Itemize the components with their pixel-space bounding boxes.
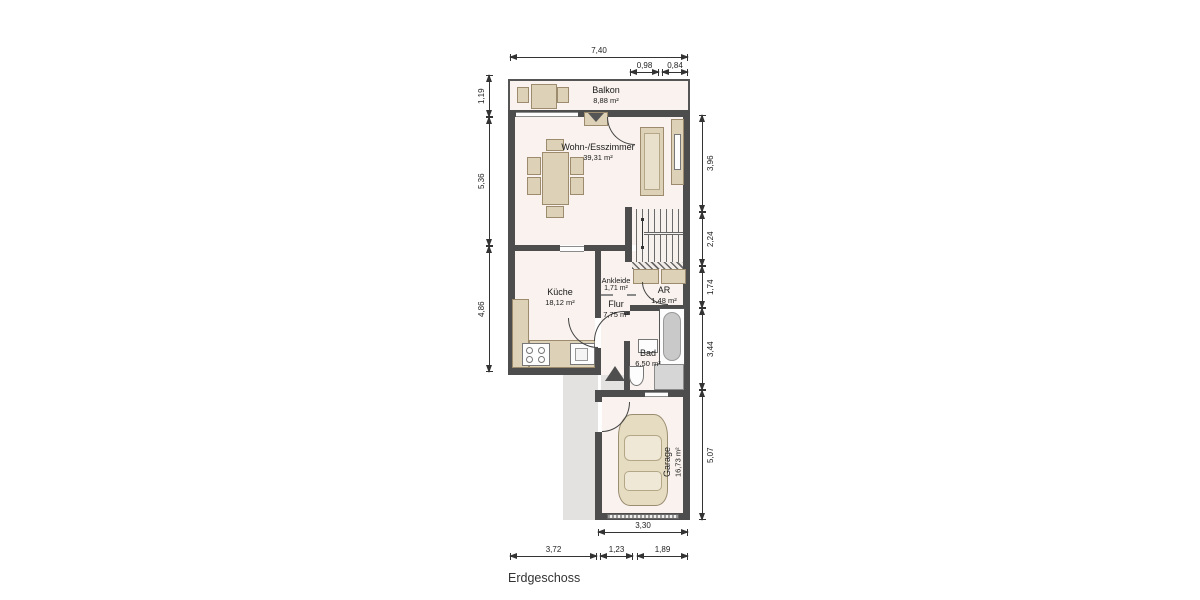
garage-window xyxy=(645,392,668,397)
burner-icon xyxy=(526,347,533,354)
dim-label: 3,44 xyxy=(706,308,715,390)
room-label-garage: Garage 16,73 m² xyxy=(662,436,683,488)
room-name: Flur xyxy=(594,299,638,310)
dim-1-23: 1,23 xyxy=(600,556,633,557)
car-icon xyxy=(618,414,668,506)
dim-label: 4,86 xyxy=(477,246,486,372)
stair-walk-dot xyxy=(641,246,644,249)
wall-segment xyxy=(625,207,632,262)
staircase xyxy=(636,209,683,262)
room-label-ar: AR 1,48 m² xyxy=(645,285,683,306)
room-area: 6,50 m² xyxy=(629,359,667,368)
dim-line xyxy=(702,390,703,520)
dim-label: 0,98 xyxy=(630,61,659,70)
tv-icon xyxy=(588,113,604,122)
dim-label: 3,30 xyxy=(598,521,688,530)
dim-line xyxy=(510,556,597,557)
dim-1-74: 1,74 xyxy=(702,266,703,308)
burner-icon xyxy=(538,347,545,354)
dim-label: 1,74 xyxy=(706,266,715,308)
wall-segment xyxy=(595,397,602,402)
balcony-railing xyxy=(508,79,510,110)
dim-0-98: 0,98 xyxy=(630,72,659,73)
dim-label: 1,19 xyxy=(477,75,486,117)
dim-1-19: 1,19 xyxy=(489,75,490,117)
wall-segment xyxy=(595,390,690,397)
room-label-wohn: Wohn-/Esszimmer 39,31 m² xyxy=(542,142,654,163)
dim-arrow xyxy=(699,513,705,521)
balcony-railing xyxy=(508,79,690,81)
dim-0-84: 0,84 xyxy=(662,72,688,73)
dim-3-72: 3,72 xyxy=(510,556,597,557)
room-name: AR xyxy=(645,285,683,296)
wall-segment xyxy=(595,432,602,520)
room-name: Bad xyxy=(629,348,667,359)
outdoor-path xyxy=(563,375,598,520)
wall-segment xyxy=(508,245,560,251)
room-label-balkon: Balkon 8,88 m² xyxy=(573,85,639,106)
doorway-passage xyxy=(560,246,584,252)
tv-screen xyxy=(674,134,681,170)
stair-cut-line xyxy=(632,262,683,269)
balcony-railing xyxy=(688,79,690,110)
dim-label: 0,84 xyxy=(662,61,688,70)
dim-3-30: 3,30 xyxy=(598,532,688,533)
dim-arrow xyxy=(486,74,492,82)
room-area: 1,48 m² xyxy=(645,296,683,305)
sink-basin xyxy=(575,348,588,361)
car-rear-window xyxy=(624,471,662,491)
balcony-chair xyxy=(557,87,569,103)
room-name: Ankleide xyxy=(593,276,639,285)
wall-segment xyxy=(508,368,601,375)
dim-label: 1,23 xyxy=(600,545,633,554)
page-title: Erdgeschoss xyxy=(508,571,580,585)
dim-1-89: 1,89 xyxy=(637,556,688,557)
burner-icon xyxy=(526,356,533,363)
dim-line xyxy=(702,115,703,212)
dim-label: 1,89 xyxy=(637,545,688,554)
dim-label: 7,40 xyxy=(510,46,688,55)
dim-arrow xyxy=(486,365,492,373)
dim-arrow xyxy=(699,211,705,219)
dim-3-96: 3,96 xyxy=(702,115,703,212)
dim-arrow xyxy=(699,389,705,397)
room-name: Wohn-/Esszimmer xyxy=(542,142,654,153)
dim-label: 5,07 xyxy=(706,390,715,520)
room-name: Balkon xyxy=(573,85,639,96)
dim-arrow xyxy=(486,245,492,253)
dim-line xyxy=(598,532,688,533)
dim-line xyxy=(489,117,490,246)
window xyxy=(516,112,578,117)
dim-3-44: 3,44 xyxy=(702,308,703,390)
room-area: 18,12 m² xyxy=(525,298,595,307)
dining-chair xyxy=(527,157,541,175)
room-area: 16,73 m² xyxy=(673,436,682,488)
stair-walk-dot xyxy=(641,218,644,221)
room-label-bad: Bad 6,50 m² xyxy=(629,348,667,369)
room-label-flur: Flur 7,75 m² xyxy=(594,299,638,320)
car-windshield xyxy=(624,435,662,461)
partition-line xyxy=(601,294,613,296)
stair-landing-line xyxy=(644,232,683,235)
room-label-ankleide: Ankleide 1,71 m² xyxy=(593,276,639,294)
dim-label: 3,72 xyxy=(510,545,597,554)
garage-door xyxy=(607,514,679,519)
room-label-kueche: Küche 18,12 m² xyxy=(525,287,595,308)
room-area: 39,31 m² xyxy=(542,153,654,162)
stair-walk-line xyxy=(642,220,643,247)
dim-arrow xyxy=(699,265,705,273)
room-name: Küche xyxy=(525,287,595,298)
toilet xyxy=(629,366,644,386)
room-area: 8,88 m² xyxy=(573,96,639,105)
balcony-table xyxy=(531,84,557,109)
room-area: 1,71 m² xyxy=(593,285,639,294)
dim-label: 2,24 xyxy=(706,212,715,266)
dim-arrow xyxy=(699,114,705,122)
entrance-arrow-icon xyxy=(605,366,625,381)
dim-line xyxy=(702,212,703,266)
room-area: 7,75 m² xyxy=(594,310,638,319)
dim-label: 5,36 xyxy=(477,117,486,246)
stove xyxy=(522,343,550,366)
dining-chair xyxy=(527,177,541,195)
dim-7-40: 7,40 xyxy=(510,57,688,58)
partition-line xyxy=(627,294,636,296)
dim-arrow xyxy=(699,307,705,315)
dim-label: 3,96 xyxy=(706,115,715,212)
dining-chair xyxy=(570,177,584,195)
dim-arrow xyxy=(486,116,492,124)
dim-5-36: 5,36 xyxy=(489,117,490,246)
dim-2-24: 2,24 xyxy=(702,212,703,266)
balcony-chair xyxy=(517,87,529,103)
dim-line xyxy=(510,57,688,58)
wall-segment xyxy=(683,390,690,520)
floor-plan: Balkon 8,88 m² Wohn-/Esszimmer 39,31 m² … xyxy=(0,0,1200,600)
dim-line xyxy=(702,308,703,390)
room-name: Garage xyxy=(662,436,673,488)
dining-chair xyxy=(546,206,564,218)
burner-icon xyxy=(538,356,545,363)
dim-4-86: 4,86 xyxy=(489,246,490,372)
dim-line xyxy=(489,246,490,372)
dim-5-07: 5,07 xyxy=(702,390,703,520)
